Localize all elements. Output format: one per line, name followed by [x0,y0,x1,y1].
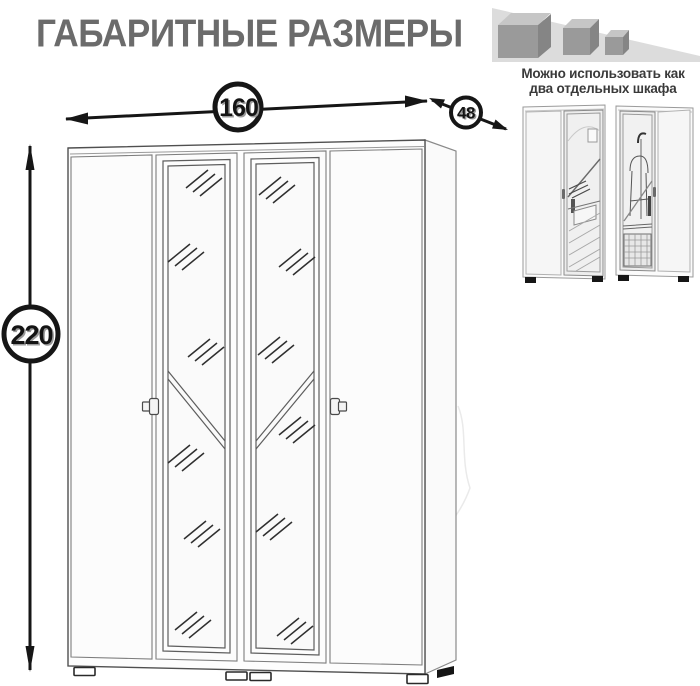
arrowhead-right-icon [405,96,428,108]
width-value: 160 [219,94,258,122]
depth-dimension: 48 48 [429,98,508,131]
mirror-right [251,158,319,656]
mirror-left [163,160,230,654]
photo-wardrobe-mirror-right [516,101,610,289]
arrowhead-up-icon [26,144,35,170]
door-1 [71,155,152,659]
photo-handle [562,189,565,199]
page: ГАБАРИТНЫЕ РАЗМЕРЫ Можно использовать ка… [0,0,700,686]
photo-handle [653,187,656,197]
wardrobe-drawing [68,140,470,684]
wardrobe-side-panel [425,140,456,674]
photo-wardrobe-mirror-left [610,101,700,289]
arrowhead-down-icon [26,646,35,672]
arrowhead-left-icon [65,113,88,125]
arrowhead-upleft-icon [429,98,445,109]
height-dimension: 220 220 [4,144,58,672]
width-dimension: 160 160 [65,84,428,130]
depth-value: 48 [457,104,475,123]
height-value: 220 [10,320,52,350]
arrowhead-downright-icon [492,120,508,131]
